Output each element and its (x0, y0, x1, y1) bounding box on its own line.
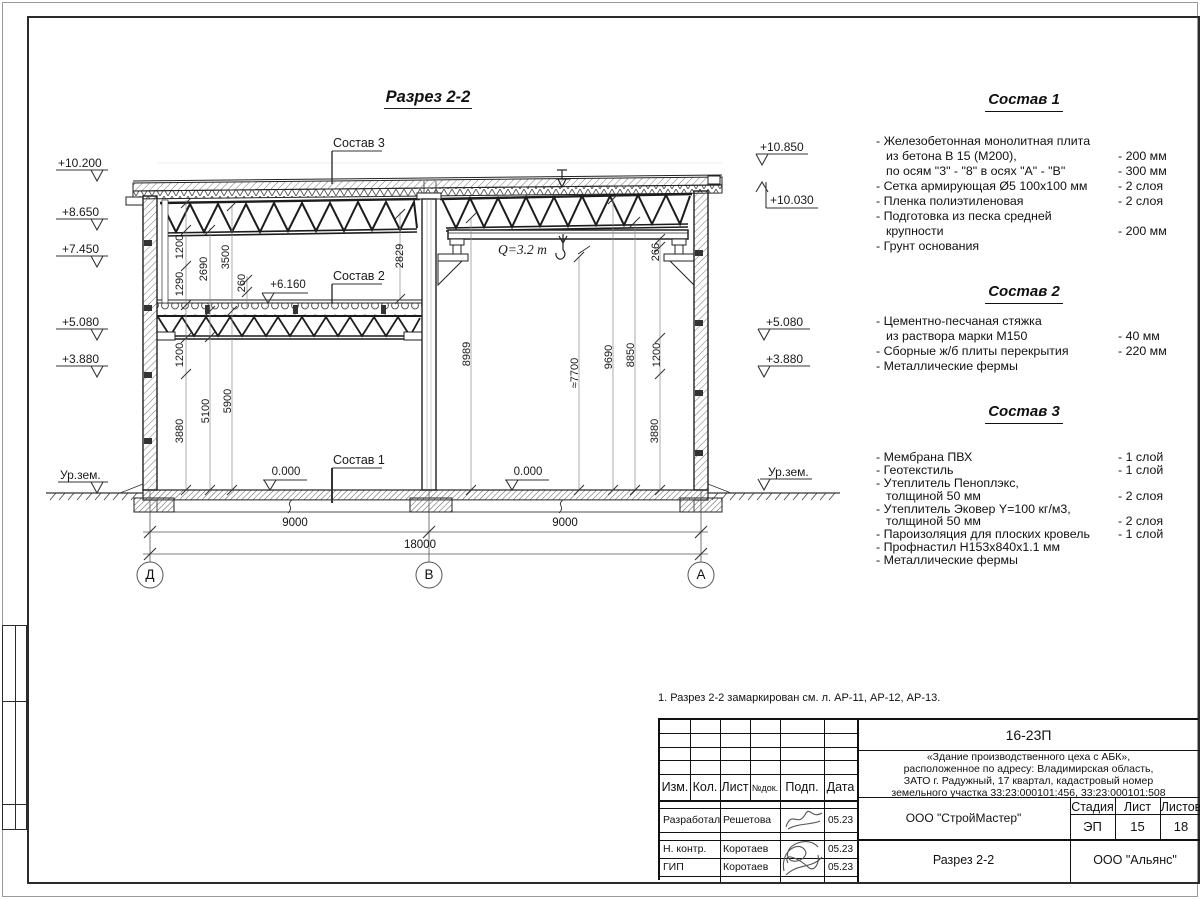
tb-col-data: Дата (824, 780, 857, 794)
tb-desc-line: ЗАТО г. Радужный, 17 квартал, кадастровы… (857, 775, 1200, 787)
layer-label-1: Состав 1 (333, 453, 385, 467)
dim-span: 9000 (250, 517, 340, 529)
spec-list-2: - Цементно-песчаная стяжка из раствора м… (856, 314, 1200, 374)
tb-stage-label: Стадия (1070, 800, 1115, 814)
tb-sheets-label: Листов (1160, 800, 1200, 814)
tb-name: Решетова (723, 814, 771, 826)
spec-heading-1: Состав 1 (856, 91, 1192, 108)
tb-col-izm: Изм. (660, 780, 690, 794)
sheet-note: 1. Разрез 2-2 замаркирован см. л. АР-11,… (658, 692, 940, 704)
elevation-label: +5.080 (62, 315, 99, 329)
dim-total: 18000 (375, 539, 465, 551)
tb-stage-value: ЭП (1070, 819, 1115, 834)
elevation-label: +3.880 (62, 352, 99, 366)
dim: 9690 (603, 335, 615, 379)
signature-icon (778, 833, 828, 881)
tb-sheet-value: 15 (1115, 819, 1160, 834)
dim-span: 9000 (520, 517, 610, 529)
dim: ≈7700 (569, 351, 581, 395)
elevation-label: +10.850 (760, 140, 804, 154)
tb-date: 05.23 (824, 844, 857, 855)
dim: 8850 (625, 333, 637, 377)
mezzanine-floor (157, 300, 422, 316)
right-parapet-detail (708, 176, 720, 184)
tb-contractor: ООО "Альянс" (1070, 853, 1200, 867)
axis-bubble-v: В (416, 567, 442, 582)
drawing-title: Разрез 2-2 (348, 88, 508, 107)
tb-name: Коротаев (723, 861, 768, 873)
dim: 2690 (198, 247, 210, 291)
tb-doc-number: 16-23П (857, 727, 1200, 743)
dim: 3500 (220, 235, 232, 279)
dim: 5900 (222, 379, 234, 423)
spec-heading-3: Состав 3 (856, 403, 1192, 420)
ground-level-label: Ур.зем. (768, 465, 809, 479)
dim: 1290 (174, 262, 186, 306)
dim: 266 (650, 230, 662, 274)
tb-desc-line: расположенное по адресу: Владимирская об… (857, 763, 1200, 775)
tb-desc-line: «Здание производственного цеха с АБК», (857, 751, 1200, 763)
ground-line-right (708, 484, 840, 500)
tb-desc-line: земельного участка 33:23:000101:456, 33:… (857, 787, 1200, 799)
mezzanine-level-label: +6.160 (266, 279, 310, 291)
elevation-label: +3.880 (766, 352, 803, 366)
elevation-label: +10.200 (58, 156, 102, 170)
crane-capacity-label: Q=3.2 т (498, 242, 547, 258)
roof-truss-right (440, 194, 692, 231)
tb-col-kol: Кол. (690, 780, 720, 794)
dim: 260 (236, 261, 248, 305)
wall-axis-d (143, 196, 168, 490)
axis-bubble-a: А (688, 567, 714, 582)
tb-date: 05.23 (824, 862, 857, 873)
wall-axis-a (694, 191, 708, 490)
ground-line-left (46, 484, 143, 500)
dim: 1200 (651, 333, 663, 377)
spec-list-3: - Мембрана ПВХ- 1 слой - Геотекстиль- 1 … (856, 450, 1200, 566)
tb-col-list: Лист (720, 780, 750, 794)
elevation-label: +7.450 (62, 242, 99, 256)
tb-role: ГИП (663, 861, 684, 873)
axis-bubble-d: Д (137, 567, 163, 582)
tb-org: ООО "СтройМастер" (857, 811, 1070, 825)
layer-label-3: Состав 3 (333, 136, 385, 150)
elevation-label: +10.030 (770, 193, 814, 207)
tb-name: Коротаев (723, 843, 768, 855)
left-eave-detail (126, 197, 143, 205)
tb-sheets-value: 18 (1160, 819, 1200, 834)
spec-heading-2: Состав 2 (856, 283, 1192, 300)
dim: 5100 (200, 389, 212, 433)
dim: 1200 (174, 333, 186, 377)
crane-bracket-left (438, 254, 468, 285)
tb-role: Н. контр. (663, 843, 706, 855)
signature-icon (782, 805, 826, 833)
zero-level-label: 0.000 (508, 466, 548, 478)
crane-bracket-right (664, 254, 694, 285)
dim: 3880 (174, 409, 186, 453)
column-axis-v (417, 193, 441, 490)
tb-col-ndok: №док. (750, 783, 780, 793)
dim: 2829 (394, 234, 406, 278)
tb-sheet-label: Лист (1115, 800, 1160, 814)
roof-truss-left (160, 199, 420, 236)
tb-date: 05.23 (824, 815, 857, 826)
elevation-label: +8.650 (62, 205, 99, 219)
dim: 3880 (649, 409, 661, 453)
tb-drawing-name: Разрез 2-2 (857, 853, 1070, 867)
tb-col-podp: Подп. (780, 780, 824, 794)
mezzanine-truss (157, 316, 422, 340)
tb-role: Разработал (663, 814, 720, 826)
elevation-label: +5.080 (766, 315, 803, 329)
spec-list-1: - Железобетонная монолитная плита из бет… (856, 134, 1200, 254)
ground-level-label: Ур.зем. (60, 468, 101, 482)
title-block: Изм. Кол. Лист №док. Подп. Дата Разработ… (658, 718, 1198, 880)
zero-level-label: 0.000 (266, 466, 306, 478)
drawing-sheet: Разрез 2-2 +10.200 +8.650 +7.450 +5.080 … (0, 0, 1200, 900)
layer-label-2: Состав 2 (333, 269, 385, 283)
dim: 8989 (461, 332, 473, 376)
